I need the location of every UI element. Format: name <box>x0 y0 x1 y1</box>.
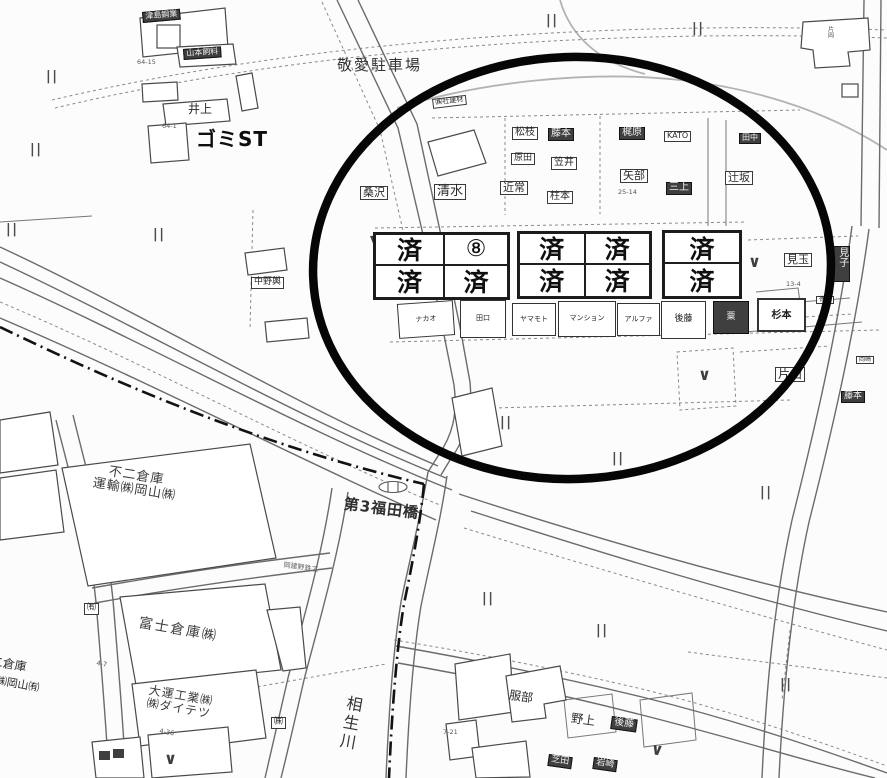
grid-cell: 済 <box>444 265 508 298</box>
label-okazaki: 岡崎 <box>856 356 874 364</box>
map-linework <box>0 0 887 778</box>
field-mark: || <box>546 14 559 28</box>
label-katayama: 片山 <box>775 367 805 382</box>
shop-label-nakao: ナカオ <box>397 300 455 339</box>
label-kuwasawa: 桑沢 <box>360 186 388 200</box>
lot-number: 64-1 <box>162 123 177 130</box>
check-mark: ∨ <box>650 740 665 759</box>
field-mark: || <box>780 678 793 692</box>
field-mark: || <box>692 22 705 36</box>
grid-cell: 済 <box>519 233 585 264</box>
lot-number: 64-15 <box>137 59 156 66</box>
field-mark: || <box>500 416 513 430</box>
grid-cell: 済 <box>664 232 740 263</box>
status-grid-block-1: 済 ⑧ 済 済 <box>373 232 510 300</box>
status-grid-block-2: 済 済 済 済 <box>517 231 652 299</box>
label-yabe: 矢部 <box>620 169 648 183</box>
grid-cell-circled-8: ⑧ <box>444 234 508 265</box>
field-mark: || <box>30 143 43 157</box>
lot-number: 13-4 <box>786 281 801 288</box>
grid-cell: 済 <box>585 233 651 264</box>
label-harada: 原田 <box>511 153 535 165</box>
shop-label-alpha: アルファ <box>617 303 660 336</box>
grid-cell: 済 <box>664 263 740 297</box>
shop-label-taguchi: 田口 <box>460 300 506 338</box>
label-matsueda: 松枝 <box>512 127 538 140</box>
check-mark: ∨ <box>748 253 761 270</box>
label-fujimoto-2: 藤本 <box>841 391 865 403</box>
label-kajiwara: 梶原 <box>619 127 645 140</box>
map-canvas: 済 ⑧ 済 済 済 済 済 済 済 済 ナカオ 田口 ヤマモト マンション アル… <box>0 0 887 778</box>
check-mark: ∨ <box>164 750 177 767</box>
label-tanaka: 田中 <box>739 133 761 144</box>
label-keiai-parking: 敬愛駐車場 <box>337 57 422 73</box>
shop-label-goto: 後藤 <box>661 301 706 339</box>
field-mark: || <box>6 223 19 237</box>
shop-label-awa: 粟 <box>713 301 749 334</box>
buildings <box>0 8 870 778</box>
label-miko: 見子 <box>833 246 850 282</box>
label-tokunaga: 徳永 <box>816 296 834 304</box>
field-mark: || <box>596 624 609 638</box>
label-kasai: 笠井 <box>551 157 577 170</box>
label-kabu: ㈱ <box>271 717 286 729</box>
field-mark: || <box>46 70 59 84</box>
label-tsujisaka: 辻坂 <box>725 171 753 185</box>
label-fujimoto: 藤本 <box>548 128 574 141</box>
label-mitama: 見玉 <box>784 253 812 267</box>
field-mark: || <box>760 486 773 500</box>
field-mark: || <box>153 228 166 242</box>
shop-label-mansion: マンション <box>558 301 616 337</box>
label-kataoka: 片岡 <box>826 26 832 38</box>
label-inoue: 井上 <box>188 103 212 116</box>
shop-label-sugimoto: 杉本 <box>757 298 806 332</box>
label-yuugen: ㈲ <box>84 603 99 615</box>
lot-number: 7-21 <box>443 729 458 736</box>
grid-cell: 済 <box>519 264 585 297</box>
label-shimizu: 清水 <box>434 184 466 200</box>
lot-number: 25-14 <box>618 189 637 196</box>
field-mark: || <box>612 452 625 466</box>
label-mikami: 三上 <box>666 182 692 195</box>
status-grid-block-3: 済 済 <box>662 230 742 299</box>
label-chikatsune: 近常 <box>500 181 528 195</box>
grid-cell: 済 <box>375 265 444 298</box>
bridge-symbol <box>379 482 407 493</box>
check-mark: ∨ <box>698 366 711 383</box>
label-hashiramoto: 柱本 <box>547 191 573 204</box>
label-gomi-st: ゴミST <box>196 129 268 151</box>
grid-cell: 済 <box>585 264 651 297</box>
label-nakano: 中野輿 <box>251 277 284 289</box>
grid-cell: 済 <box>375 234 444 265</box>
shop-label-yamamoto: ヤマモト <box>512 303 556 336</box>
label-kato: KATO <box>664 131 691 142</box>
field-mark: || <box>482 592 495 606</box>
